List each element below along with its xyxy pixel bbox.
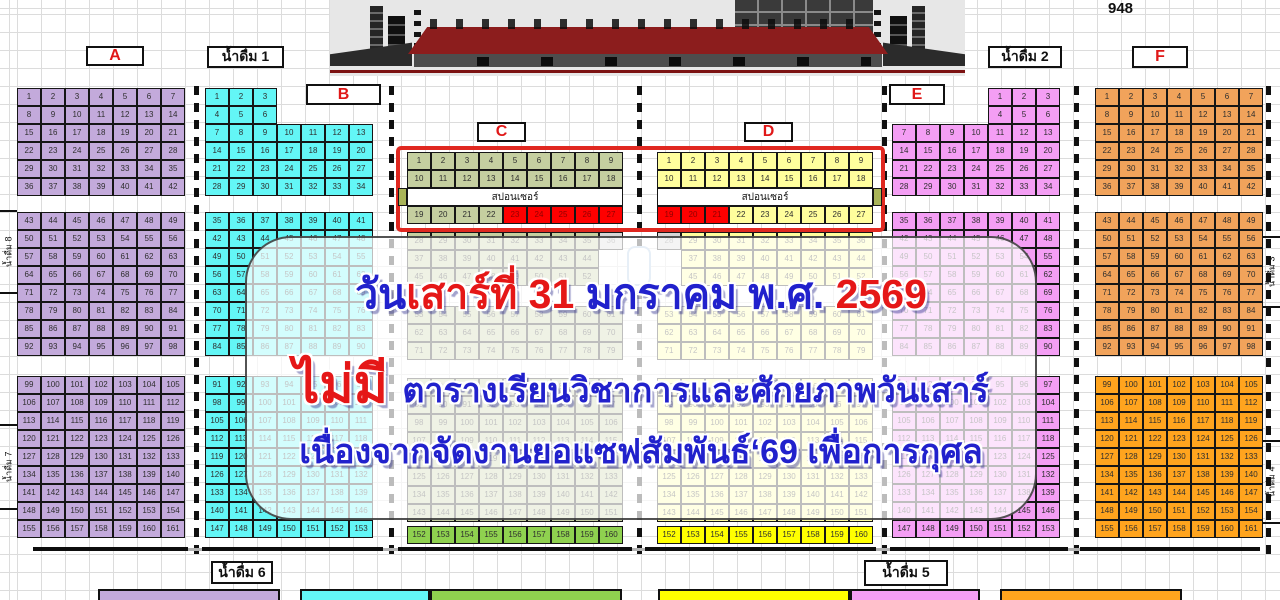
seat-A-56: 56	[161, 230, 185, 248]
seat-A-26: 26	[113, 142, 137, 160]
seat-C-153: 153	[431, 526, 455, 544]
seat-A-5: 5	[113, 88, 137, 106]
seat-D-25: 25	[801, 206, 825, 224]
seat-F-78: 78	[1095, 302, 1119, 320]
seat-F-146: 146	[1215, 484, 1239, 502]
label-F: F	[1132, 46, 1188, 68]
seat-A-11: 11	[89, 106, 113, 124]
seat-E-38: 38	[964, 212, 988, 230]
seat-D-20: 20	[681, 206, 705, 224]
seat-F-99: 99	[1095, 376, 1119, 394]
seat-F-119: 119	[1239, 412, 1263, 430]
seat-F-113: 113	[1095, 412, 1119, 430]
seat-A-97: 97	[137, 338, 161, 356]
seat-F-75: 75	[1191, 284, 1215, 302]
seat-D-23: 23	[753, 206, 777, 224]
seat-D-7: 7	[801, 152, 825, 170]
seat-A-30: 30	[41, 160, 65, 178]
seat-C-20: 20	[431, 206, 455, 224]
seat-E-55: 55	[1036, 248, 1060, 266]
seat-F-69: 69	[1215, 266, 1239, 284]
seat-F-21: 21	[1239, 124, 1263, 142]
seat-B-20: 20	[349, 142, 373, 160]
seat-C-14: 14	[503, 170, 527, 188]
seat-E-104: 104	[1036, 394, 1060, 412]
seat-F-73: 73	[1143, 284, 1167, 302]
seat-B-28: 28	[205, 178, 229, 196]
seat-D-26: 26	[825, 206, 849, 224]
seat-F-52: 52	[1143, 230, 1167, 248]
seat-A-89: 89	[113, 320, 137, 338]
seat-F-137: 137	[1167, 466, 1191, 484]
seat-B-56: 56	[205, 266, 229, 284]
seat-B-19: 19	[325, 142, 349, 160]
seat-F-68: 68	[1191, 266, 1215, 284]
seat-E-5: 5	[1012, 106, 1036, 124]
seat-A-106: 106	[17, 394, 41, 412]
seat-E-35: 35	[892, 212, 916, 230]
seat-F-28: 28	[1239, 142, 1263, 160]
seat-A-16: 16	[41, 124, 65, 142]
seat-E-151: 151	[988, 520, 1012, 538]
seat-D-15: 15	[777, 170, 801, 188]
label-น้ำดื่ม 2: น้ำดื่ม 2	[988, 46, 1062, 68]
seat-A-55: 55	[137, 230, 161, 248]
seat-F-38: 38	[1143, 178, 1167, 196]
seat-A-114: 114	[41, 412, 65, 430]
seat-A-9: 9	[41, 106, 65, 124]
seat-D-17: 17	[825, 170, 849, 188]
seat-E-125: 125	[1036, 448, 1060, 466]
seat-A-112: 112	[161, 394, 185, 412]
seat-D-18: 18	[849, 170, 873, 188]
seat-F-124: 124	[1191, 430, 1215, 448]
seat-F-19: 19	[1191, 124, 1215, 142]
seat-A-44: 44	[41, 212, 65, 230]
seat-A-86: 86	[41, 320, 65, 338]
seat-A-100: 100	[41, 376, 65, 394]
seat-F-85: 85	[1095, 320, 1119, 338]
seat-F-60: 60	[1167, 248, 1191, 266]
seat-F-32: 32	[1167, 160, 1191, 178]
seat-B-14: 14	[205, 142, 229, 160]
seat-F-121: 121	[1119, 430, 1143, 448]
seat-A-48: 48	[137, 212, 161, 230]
seat-B-9: 9	[253, 124, 277, 142]
seat-F-132: 132	[1215, 448, 1239, 466]
seat-F-110: 110	[1191, 394, 1215, 412]
seat-B-15: 15	[229, 142, 253, 160]
seat-D-158: 158	[801, 526, 825, 544]
seat-F-114: 114	[1119, 412, 1143, 430]
water-label-rotated: น้ำดื่ม 7	[0, 424, 17, 510]
seat-C-22: 22	[479, 206, 503, 224]
seat-A-1: 1	[17, 88, 41, 106]
seat-C-152: 152	[407, 526, 431, 544]
seat-C-2: 2	[431, 152, 455, 170]
bottom-border-line	[1080, 547, 1260, 551]
seat-D-154: 154	[705, 526, 729, 544]
seat-A-36: 36	[17, 178, 41, 196]
seat-E-10: 10	[964, 124, 988, 142]
seat-B-149: 149	[253, 520, 277, 538]
seat-A-70: 70	[161, 266, 185, 284]
seat-F-76: 76	[1215, 284, 1239, 302]
seat-F-35: 35	[1239, 160, 1263, 178]
seat-A-161: 161	[161, 520, 185, 538]
seat-E-14: 14	[892, 142, 916, 160]
seat-A-140: 140	[161, 466, 185, 484]
seat-E-24: 24	[964, 160, 988, 178]
seat-A-84: 84	[161, 302, 185, 320]
seat-D-14: 14	[753, 170, 777, 188]
seat-A-88: 88	[89, 320, 113, 338]
seat-F-86: 86	[1119, 320, 1143, 338]
seat-B-17: 17	[277, 142, 301, 160]
seat-A-123: 123	[89, 430, 113, 448]
seat-F-14: 14	[1239, 106, 1263, 124]
seat-A-81: 81	[89, 302, 113, 320]
seat-F-161: 161	[1239, 520, 1263, 538]
seat-F-22: 22	[1095, 142, 1119, 160]
seat-A-131: 131	[113, 448, 137, 466]
seat-E-18: 18	[988, 142, 1012, 160]
seat-E-12: 12	[1012, 124, 1036, 142]
seat-F-25: 25	[1167, 142, 1191, 160]
legend-section-B	[300, 589, 430, 600]
sponsor-row: สปอนเซอร์	[657, 188, 873, 206]
seat-F-66: 66	[1143, 266, 1167, 284]
label-E: E	[889, 84, 945, 105]
seat-F-16: 16	[1119, 124, 1143, 142]
seat-E-147: 147	[892, 520, 916, 538]
seat-A-108: 108	[65, 394, 89, 412]
seat-A-23: 23	[41, 142, 65, 160]
seat-A-75: 75	[113, 284, 137, 302]
seat-A-85: 85	[17, 320, 41, 338]
seat-F-160: 160	[1215, 520, 1239, 538]
legend-section-D	[658, 589, 850, 600]
seat-F-135: 135	[1119, 466, 1143, 484]
seat-B-5: 5	[229, 106, 253, 124]
seat-A-68: 68	[113, 266, 137, 284]
seat-F-154: 154	[1239, 502, 1263, 520]
seat-A-87: 87	[65, 320, 89, 338]
seat-A-115: 115	[65, 412, 89, 430]
seat-A-98: 98	[161, 338, 185, 356]
seat-F-41: 41	[1215, 178, 1239, 196]
seat-F-12: 12	[1191, 106, 1215, 124]
seat-F-133: 133	[1239, 448, 1263, 466]
seat-C-27: 27	[599, 206, 623, 224]
seat-B-63: 63	[205, 284, 229, 302]
seat-E-39: 39	[988, 212, 1012, 230]
seat-A-152: 152	[113, 502, 137, 520]
seat-E-48: 48	[1036, 230, 1060, 248]
seat-F-7: 7	[1239, 88, 1263, 106]
seat-A-69: 69	[137, 266, 161, 284]
seat-C-18: 18	[599, 170, 623, 188]
seat-F-63: 63	[1239, 248, 1263, 266]
seat-A-118: 118	[137, 412, 161, 430]
seat-E-90: 90	[1036, 338, 1060, 356]
seat-B-32: 32	[301, 178, 325, 196]
seat-F-130: 130	[1167, 448, 1191, 466]
seat-C-13: 13	[479, 170, 503, 188]
seat-B-98: 98	[205, 394, 229, 412]
seat-B-6: 6	[253, 106, 277, 124]
seat-C-23: 23	[503, 206, 527, 224]
announcement-line-no-class: ไม่มี ตารางเรียนวิชาการและศักยภาพวันเสาร…	[245, 342, 1037, 425]
seat-E-152: 152	[1012, 520, 1036, 538]
seat-A-32: 32	[89, 160, 113, 178]
seat-C-24: 24	[527, 206, 551, 224]
seat-E-28: 28	[892, 178, 916, 196]
seat-F-18: 18	[1167, 124, 1191, 142]
seat-C-9: 9	[599, 152, 623, 170]
seat-B-141: 141	[229, 502, 253, 520]
seat-A-66: 66	[65, 266, 89, 284]
seat-A-102: 102	[89, 376, 113, 394]
seat-F-112: 112	[1239, 394, 1263, 412]
seat-B-24: 24	[277, 160, 301, 178]
seat-D-22: 22	[729, 206, 753, 224]
seat-A-24: 24	[65, 142, 89, 160]
seat-A-83: 83	[137, 302, 161, 320]
stage-front-line	[330, 70, 965, 73]
seat-F-49: 49	[1239, 212, 1263, 230]
seat-A-96: 96	[113, 338, 137, 356]
seat-F-109: 109	[1167, 394, 1191, 412]
seat-A-40: 40	[113, 178, 137, 196]
seat-D-2: 2	[681, 152, 705, 170]
seat-D-5: 5	[753, 152, 777, 170]
seat-F-143: 143	[1143, 484, 1167, 502]
seat-B-84: 84	[205, 338, 229, 356]
seat-B-38: 38	[277, 212, 301, 230]
announcement-text-segment: วัน	[355, 271, 406, 317]
stage-equipment	[430, 19, 866, 29]
seat-A-136: 136	[65, 466, 89, 484]
seat-F-62: 62	[1215, 248, 1239, 266]
seat-E-148: 148	[916, 520, 940, 538]
seat-A-72: 72	[41, 284, 65, 302]
seat-B-16: 16	[253, 142, 277, 160]
seat-F-93: 93	[1119, 338, 1143, 356]
seat-D-159: 159	[825, 526, 849, 544]
seat-B-152: 152	[325, 520, 349, 538]
seat-F-105: 105	[1239, 376, 1263, 394]
seat-B-1: 1	[205, 88, 229, 106]
seat-F-94: 94	[1143, 338, 1167, 356]
seat-A-130: 130	[89, 448, 113, 466]
seat-A-134: 134	[17, 466, 41, 484]
seat-C-157: 157	[527, 526, 551, 544]
seat-A-78: 78	[17, 302, 41, 320]
water-label-rotated: น้ำดื่ม 3	[1263, 236, 1280, 308]
seat-A-141: 141	[17, 484, 41, 502]
seat-F-42: 42	[1239, 178, 1263, 196]
seat-F-120: 120	[1095, 430, 1119, 448]
seat-E-27: 27	[1036, 160, 1060, 178]
seat-B-70: 70	[205, 302, 229, 320]
seat-A-73: 73	[65, 284, 89, 302]
seat-A-17: 17	[65, 124, 89, 142]
seat-F-33: 33	[1191, 160, 1215, 178]
seat-C-155: 155	[479, 526, 503, 544]
seat-E-34: 34	[1036, 178, 1060, 196]
seat-D-1: 1	[657, 152, 681, 170]
seat-D-157: 157	[777, 526, 801, 544]
seat-A-110: 110	[113, 394, 137, 412]
bottom-border-line	[398, 547, 632, 551]
seat-F-24: 24	[1143, 142, 1167, 160]
seat-A-126: 126	[161, 430, 185, 448]
seat-E-30: 30	[940, 178, 964, 196]
seat-E-25: 25	[988, 160, 1012, 178]
seat-C-21: 21	[455, 206, 479, 224]
seat-F-150: 150	[1143, 502, 1167, 520]
seat-A-76: 76	[137, 284, 161, 302]
seat-F-5: 5	[1191, 88, 1215, 106]
seat-A-109: 109	[89, 394, 113, 412]
seat-B-91: 91	[205, 376, 229, 394]
label-น้ำดื่ม 1: น้ำดื่ม 1	[207, 46, 284, 68]
seat-C-159: 159	[575, 526, 599, 544]
seat-F-29: 29	[1095, 160, 1119, 178]
seat-D-6: 6	[777, 152, 801, 170]
seat-D-4: 4	[729, 152, 753, 170]
seat-E-139: 139	[1036, 484, 1060, 502]
seat-B-10: 10	[277, 124, 301, 142]
seat-B-147: 147	[205, 520, 229, 538]
seat-B-27: 27	[349, 160, 373, 178]
seat-B-42: 42	[205, 230, 229, 248]
seat-F-144: 144	[1167, 484, 1191, 502]
seat-A-94: 94	[65, 338, 89, 356]
seat-F-129: 129	[1143, 448, 1167, 466]
seat-A-111: 111	[137, 394, 161, 412]
seat-A-52: 52	[65, 230, 89, 248]
seat-F-103: 103	[1191, 376, 1215, 394]
seat-A-79: 79	[41, 302, 65, 320]
seat-B-151: 151	[301, 520, 325, 538]
seat-F-31: 31	[1143, 160, 1167, 178]
water-label-rotated: น้ำดื่ม 8	[0, 210, 17, 294]
seat-C-25: 25	[551, 206, 575, 224]
seat-E-4: 4	[988, 106, 1012, 124]
seat-A-47: 47	[113, 212, 137, 230]
seat-A-8: 8	[17, 106, 41, 124]
seat-A-116: 116	[89, 412, 113, 430]
seat-D-155: 155	[729, 526, 753, 544]
seat-C-158: 158	[551, 526, 575, 544]
seat-D-11: 11	[681, 170, 705, 188]
seat-E-3: 3	[1036, 88, 1060, 106]
seat-F-136: 136	[1143, 466, 1167, 484]
stage-platform	[408, 27, 888, 54]
seat-D-27: 27	[849, 206, 873, 224]
seat-F-54: 54	[1191, 230, 1215, 248]
seat-F-39: 39	[1167, 178, 1191, 196]
seat-F-140: 140	[1239, 466, 1263, 484]
seat-E-16: 16	[940, 142, 964, 160]
seat-A-65: 65	[41, 266, 65, 284]
seat-A-20: 20	[137, 124, 161, 142]
announcement-line-reason: เนื่องจากจัดงานยอแซฟสัมพันธ์‘69 เพื่อการ…	[245, 424, 1037, 478]
seat-F-71: 71	[1095, 284, 1119, 302]
seat-F-30: 30	[1119, 160, 1143, 178]
seat-F-15: 15	[1095, 124, 1119, 142]
seat-A-103: 103	[113, 376, 137, 394]
legend-section-C	[430, 589, 622, 600]
seat-C-12: 12	[455, 170, 479, 188]
seat-A-64: 64	[17, 266, 41, 284]
seat-E-32: 32	[988, 178, 1012, 196]
seat-F-126: 126	[1239, 430, 1263, 448]
seat-F-40: 40	[1191, 178, 1215, 196]
seat-A-145: 145	[113, 484, 137, 502]
seat-F-83: 83	[1215, 302, 1239, 320]
seat-F-55: 55	[1215, 230, 1239, 248]
seat-F-87: 87	[1143, 320, 1167, 338]
seat-B-119: 119	[205, 448, 229, 466]
seat-A-150: 150	[65, 502, 89, 520]
seat-A-37: 37	[41, 178, 65, 196]
seat-E-118: 118	[1036, 430, 1060, 448]
seat-F-56: 56	[1239, 230, 1263, 248]
seat-B-8: 8	[229, 124, 253, 142]
label-B: B	[306, 84, 381, 105]
seat-F-92: 92	[1095, 338, 1119, 356]
seat-A-61: 61	[113, 248, 137, 266]
seat-A-46: 46	[89, 212, 113, 230]
seat-F-4: 4	[1167, 88, 1191, 106]
seat-F-100: 100	[1119, 376, 1143, 394]
seat-A-148: 148	[17, 502, 41, 520]
seat-F-89: 89	[1191, 320, 1215, 338]
seat-E-111: 111	[1036, 412, 1060, 430]
seat-F-44: 44	[1119, 212, 1143, 230]
seat-F-139: 139	[1215, 466, 1239, 484]
seat-E-76: 76	[1036, 302, 1060, 320]
seat-D-160: 160	[849, 526, 873, 544]
seat-A-132: 132	[137, 448, 161, 466]
seat-A-121: 121	[41, 430, 65, 448]
seat-F-104: 104	[1215, 376, 1239, 394]
seat-A-125: 125	[137, 430, 161, 448]
seat-A-27: 27	[137, 142, 161, 160]
seat-A-92: 92	[17, 338, 41, 356]
seat-C-26: 26	[575, 206, 599, 224]
seat-A-3: 3	[65, 88, 89, 106]
sponsor-flank-cell	[873, 188, 882, 206]
seat-F-95: 95	[1167, 338, 1191, 356]
seat-F-159: 159	[1191, 520, 1215, 538]
seat-A-113: 113	[17, 412, 41, 430]
seat-E-83: 83	[1036, 320, 1060, 338]
seat-A-135: 135	[41, 466, 65, 484]
seat-B-40: 40	[325, 212, 349, 230]
seat-C-3: 3	[455, 152, 479, 170]
seat-F-26: 26	[1191, 142, 1215, 160]
seat-B-4: 4	[205, 106, 229, 124]
seat-A-51: 51	[41, 230, 65, 248]
seat-A-156: 156	[41, 520, 65, 538]
seat-A-139: 139	[137, 466, 161, 484]
seat-F-20: 20	[1215, 124, 1239, 142]
seat-F-67: 67	[1167, 266, 1191, 284]
